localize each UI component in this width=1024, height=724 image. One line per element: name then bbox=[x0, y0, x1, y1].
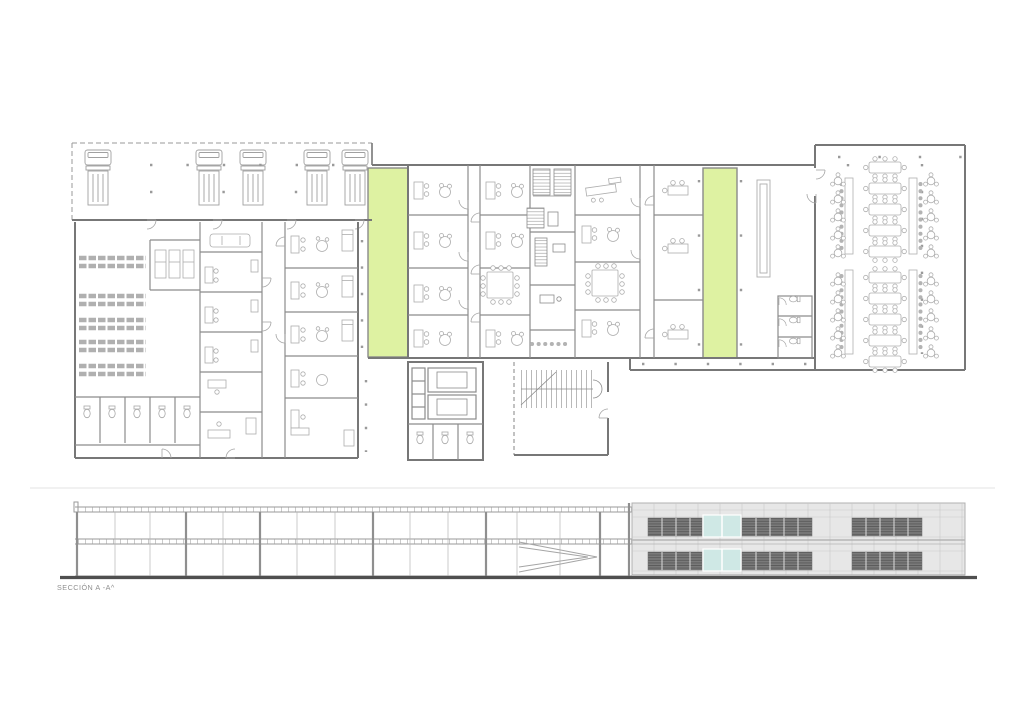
green-corridor-2 bbox=[703, 168, 737, 358]
truck-icon bbox=[240, 150, 266, 205]
truck-icon bbox=[85, 150, 111, 205]
meeting-room-2 bbox=[586, 264, 625, 303]
elevator-core bbox=[408, 362, 483, 460]
truck-icon bbox=[342, 150, 368, 205]
meeting-room-1 bbox=[481, 266, 520, 305]
exam-rooms bbox=[205, 234, 258, 438]
office-block bbox=[368, 145, 815, 370]
architectural-drawing: SECCIÓN A -A^ bbox=[0, 0, 1024, 724]
core-stairs bbox=[527, 169, 571, 344]
left-wing bbox=[75, 222, 366, 458]
truck-icon bbox=[304, 150, 330, 205]
stair-core bbox=[514, 362, 608, 455]
section-label: SECCIÓN A -A^ bbox=[57, 583, 115, 592]
truck-icon bbox=[196, 150, 222, 205]
section-view: SECCIÓN A -A^ bbox=[57, 502, 977, 592]
bench-rows bbox=[79, 258, 146, 374]
green-corridor-1 bbox=[368, 168, 408, 357]
stair-section bbox=[519, 542, 597, 572]
treatment-rooms bbox=[291, 230, 354, 446]
section-facade bbox=[632, 503, 965, 575]
reception bbox=[585, 177, 624, 204]
floor-plan bbox=[72, 143, 965, 460]
section-structure bbox=[74, 502, 632, 576]
machine-room bbox=[155, 250, 194, 278]
toilet-block-right bbox=[778, 296, 812, 358]
loading-dock bbox=[72, 143, 372, 229]
drawing-canvas: SECCIÓN A -A^ bbox=[0, 0, 1024, 724]
